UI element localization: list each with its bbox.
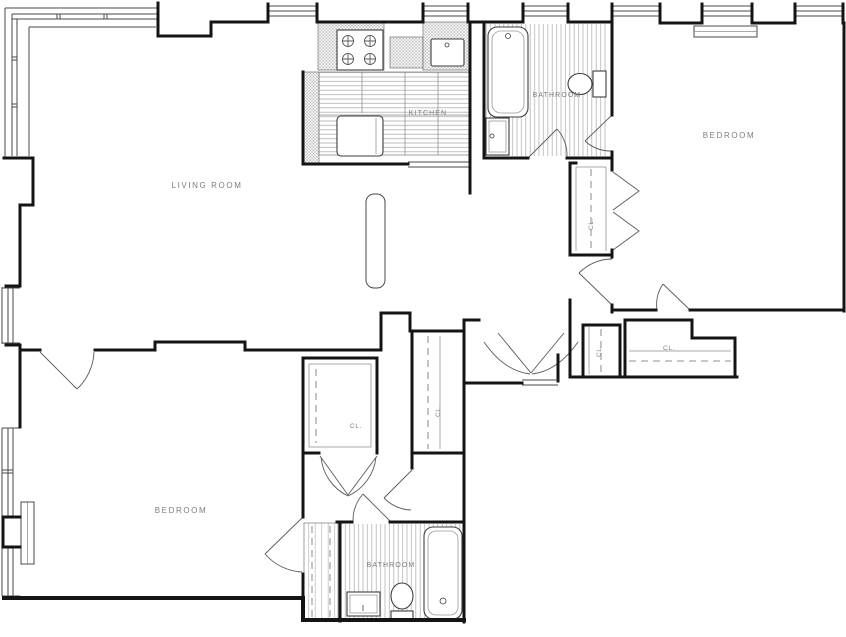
toilet (391, 583, 413, 620)
kitchen-threshold (408, 162, 470, 167)
console (366, 194, 385, 288)
closet-label: CL. (596, 345, 603, 357)
room-label-living-room: LIVING ROOM (172, 181, 243, 190)
entry-threshold (522, 380, 558, 385)
radiator (694, 26, 757, 37)
kitchen-sink (431, 39, 464, 66)
kitchen-counter-hatch (303, 72, 319, 164)
closets: CL. CL. CL. CL. CL. (309, 167, 731, 449)
closet-bedroom2-walkin: CL. (309, 364, 371, 447)
door-swing (657, 284, 690, 310)
double-door-swing (320, 456, 377, 496)
doors (40, 115, 690, 572)
room-labels: LIVING ROOM BEDROOM BEDROOM (155, 131, 756, 515)
door-swing (40, 352, 94, 389)
door-swing (265, 517, 303, 572)
stove (337, 30, 383, 70)
room-label-bedroom-bottom-left: BEDROOM (155, 506, 208, 515)
closet-label: CL. (588, 218, 595, 230)
bathtub (424, 527, 462, 619)
closet-hall-tall: CL. (428, 336, 442, 449)
floor-plan: KITCHEN BATHROOM (0, 0, 846, 637)
window (2, 548, 20, 596)
hall-closet-walls (570, 300, 737, 377)
kitchen-counter-hatch (390, 37, 423, 68)
closet-label: CL. (663, 345, 675, 352)
bathroom-sink (486, 118, 509, 155)
floor-plan-drawing: KITCHEN BATHROOM (0, 0, 846, 637)
closet-bedroom1: CL. (576, 167, 639, 251)
bathroom-sink (347, 592, 380, 616)
closet-hall-wide: CL. (629, 345, 731, 361)
bathroom-bottom: BATHROOM (304, 523, 463, 620)
room-label-kitchen: KITCHEN (409, 110, 447, 117)
radiator (21, 502, 34, 564)
window (2, 287, 20, 344)
room-label-bedroom-top-right: BEDROOM (703, 131, 756, 140)
bathtub (488, 27, 528, 117)
living-room-south-wall (20, 313, 479, 350)
room-label-bathroom-top: BATHROOM (533, 92, 582, 99)
door-swing (579, 259, 612, 305)
bathroom-top: BATHROOM (486, 24, 606, 156)
closet-label: CL. (435, 405, 442, 417)
exterior-wall-right (612, 23, 844, 311)
door-swing (384, 470, 412, 510)
plumbing-chase (304, 523, 338, 620)
bifold-door (613, 172, 639, 250)
closet-walkin-walls (303, 358, 377, 455)
double-door-swing (484, 333, 578, 374)
closet-label: CL. (350, 423, 362, 430)
window-bay (268, 6, 843, 16)
room-label-bathroom-bottom: BATHROOM (367, 562, 416, 569)
refrigerator (337, 116, 383, 156)
door-swing (353, 494, 391, 522)
kitchen-area: KITCHEN (303, 22, 470, 167)
corner-window (5, 8, 159, 157)
closet-hall-small: CL. (589, 327, 603, 374)
window (2, 428, 20, 516)
